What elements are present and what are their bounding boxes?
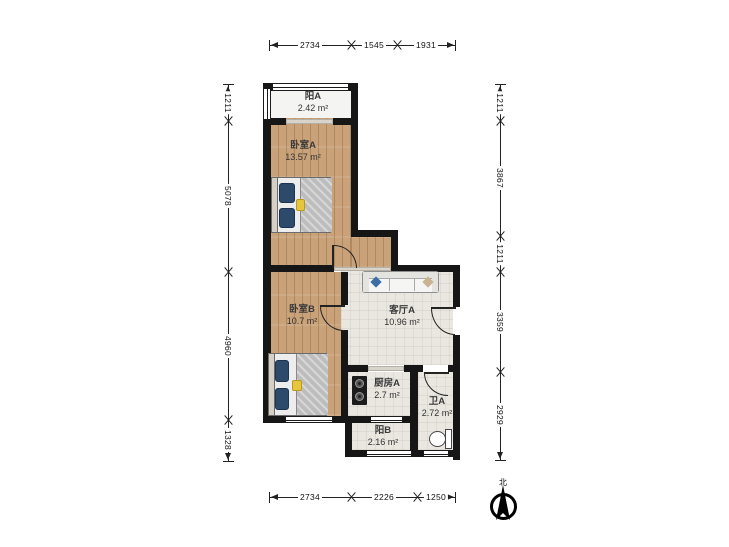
room-area: 2.16 m² (368, 437, 399, 448)
sofa-divider (389, 278, 390, 291)
threshold (286, 119, 333, 124)
room-name: 客厅A (384, 305, 420, 317)
door-leaf (424, 372, 449, 374)
dimension-endbar (455, 492, 456, 503)
room-area: 2.72 m² (422, 408, 453, 419)
room-area: 2.7 m² (374, 390, 400, 401)
room-label-kitchen: 厨房A 2.7 m² (374, 378, 400, 401)
wall-segment (453, 265, 460, 307)
window (366, 450, 412, 457)
threshold (368, 366, 404, 371)
dimension-tick (222, 266, 234, 278)
room-name: 卫A (422, 396, 453, 408)
room-name: 卧室B (287, 304, 318, 316)
dimension-arrow (497, 452, 503, 459)
wall-segment (341, 272, 348, 305)
room-name: 阳A (298, 91, 329, 103)
dimension-arrow (271, 42, 278, 48)
window (423, 450, 449, 457)
dimension-label: 4960 (223, 334, 233, 358)
room-label-bedroom-a: 卧室A 13.57 m² (285, 140, 321, 163)
stove-burner (355, 379, 364, 388)
dimension-tick (222, 414, 234, 426)
dimension-tick (494, 230, 506, 242)
bed-cushion (292, 380, 302, 391)
bed-icon (268, 353, 327, 416)
wall-segment (333, 118, 358, 125)
wall-segment (351, 83, 358, 237)
room-area: 10.7 m² (287, 316, 318, 327)
room-name: 卧室A (285, 140, 321, 152)
dimension-tick (391, 39, 403, 51)
dimension-label: 1328 (223, 428, 233, 452)
dimension-label: 2734 (298, 40, 322, 50)
dimension-label: 1545 (362, 40, 386, 50)
door-leaf (332, 245, 334, 268)
wall-segment (341, 330, 348, 416)
window (272, 83, 349, 91)
compass-icon (494, 485, 512, 523)
room-area: 10.96 m² (384, 317, 420, 328)
wall-segment (410, 365, 418, 457)
dimension-tick (494, 366, 506, 378)
dimension-tick (494, 266, 506, 278)
dimension-tick (411, 491, 423, 503)
dimension-label: 1211 (495, 91, 505, 114)
wall-segment (453, 335, 460, 460)
wall-segment (448, 365, 460, 372)
dimension-arrow (271, 494, 278, 500)
floor-plan: 阳A 2.42 m² 卧室A 13.57 m² 卧室B 10.7 m² 客厅A … (0, 0, 729, 547)
bed-pillow (279, 183, 295, 203)
dimension-label: 1931 (414, 40, 438, 50)
door-leaf (431, 307, 456, 309)
stove-icon (352, 376, 367, 405)
dimension-endbar (495, 460, 506, 461)
sofa-icon (362, 271, 439, 293)
dimension-label: 1211 (223, 91, 233, 114)
dimension-endbar (269, 40, 270, 51)
dimension-label: 3867 (495, 166, 505, 190)
dimension-label: 2929 (495, 403, 505, 427)
dimension-endbar (495, 84, 506, 85)
dimension-label: 1211 (495, 242, 505, 265)
bed-headboard (272, 178, 278, 232)
window (285, 416, 333, 423)
room-label-bedroom-b: 卧室B 10.7 m² (287, 304, 318, 327)
window (370, 416, 403, 423)
room-label-bath: 卫A 2.72 m² (422, 396, 453, 419)
bed-pillow (279, 208, 295, 228)
room-area: 13.57 m² (285, 152, 321, 163)
room-label-balcony-a: 阳A 2.42 m² (298, 91, 329, 114)
dimension-endbar (223, 84, 234, 85)
dimension-label: 3359 (495, 310, 505, 334)
room-name: 阳B (368, 425, 399, 437)
hallway-floor (351, 237, 391, 268)
bed-icon (271, 177, 331, 233)
toilet-icon (445, 429, 452, 449)
door-leaf (320, 305, 345, 307)
dimension-endbar (223, 461, 234, 462)
room-label-balcony-b: 阳B 2.16 m² (368, 425, 399, 448)
sofa-arm (363, 272, 369, 292)
dimension-label: 1250 (424, 492, 448, 502)
bed-pillow (275, 388, 289, 410)
bed-cushion (296, 199, 305, 211)
wall-segment (341, 365, 368, 372)
toilet-bowl (429, 431, 446, 447)
dimension-endbar (455, 40, 456, 51)
dimension-arrow (225, 453, 231, 460)
dimension-tick (494, 115, 506, 127)
wall-segment (263, 265, 334, 272)
dimension-label: 5078 (223, 184, 233, 208)
room-label-living: 客厅A 10.96 m² (384, 305, 420, 328)
window (263, 88, 271, 120)
bed-pillow (275, 360, 289, 382)
room-name: 厨房A (374, 378, 400, 390)
dimension-arrow (447, 42, 454, 48)
dimension-label: 2734 (298, 492, 322, 502)
dimension-endbar (269, 492, 270, 503)
dimension-tick (345, 491, 357, 503)
room-area: 2.42 m² (298, 103, 329, 114)
sofa-divider (414, 278, 415, 291)
dimension-tick (345, 39, 357, 51)
dimension-label: 2226 (372, 492, 396, 502)
stove-burner (355, 392, 364, 401)
dimension-tick (222, 115, 234, 127)
